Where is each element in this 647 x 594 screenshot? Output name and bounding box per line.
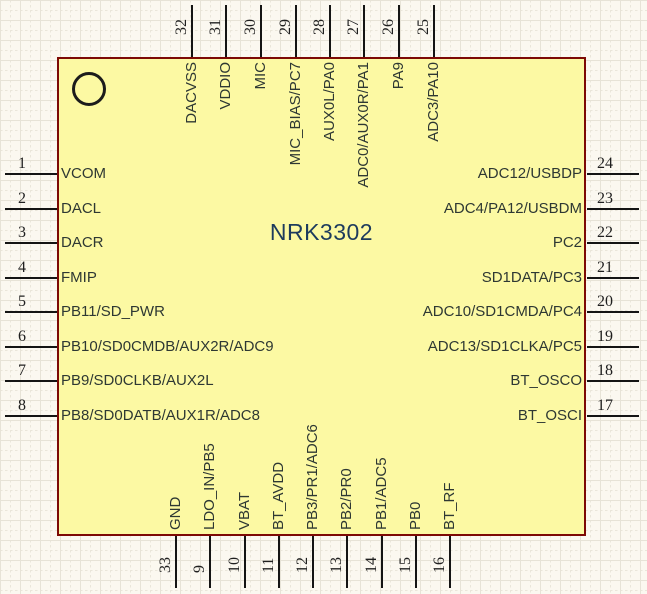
pin-line: [5, 208, 57, 210]
pin-name: MIC: [253, 62, 269, 90]
pin-line: [433, 5, 435, 57]
pin-number: 15: [397, 557, 414, 573]
pin-number: 29: [277, 19, 294, 35]
pin-line: [449, 536, 451, 588]
pin-number: 27: [345, 19, 362, 35]
pin-line: [587, 380, 639, 382]
pin-line: [587, 277, 639, 279]
pin-number: 6: [0, 328, 44, 345]
pin-name: VCOM: [61, 166, 106, 182]
pin-number: 25: [415, 19, 432, 35]
pin-number: 14: [363, 557, 380, 573]
pin-number: 1: [0, 155, 44, 172]
pin-name: BT_OSCO: [510, 373, 582, 389]
pin-name: ADC4/PA12/USBDM: [444, 201, 582, 217]
pin-line: [295, 5, 297, 57]
pin-name: VBAT: [237, 492, 253, 530]
pin-line: [244, 536, 246, 588]
pin-name: PB0: [408, 502, 424, 530]
pin-line: [5, 380, 57, 382]
pin-name: GND: [168, 497, 184, 530]
pin-line: [175, 536, 177, 588]
pin-number: 31: [207, 19, 224, 35]
pin-line: [587, 346, 639, 348]
pin-number: 33: [157, 557, 174, 573]
pin-number: 26: [380, 19, 397, 35]
pin-name: SD1DATA/PC3: [482, 270, 582, 286]
pin-number: 12: [294, 557, 311, 573]
pin-line: [5, 173, 57, 175]
pin-line: [329, 5, 331, 57]
pin-name: PC2: [553, 235, 582, 251]
pin-line: [587, 311, 639, 313]
pin-number: 17: [583, 397, 627, 414]
pin-line: [191, 5, 193, 57]
pin-line: [415, 536, 417, 588]
pin-number: 5: [0, 293, 44, 310]
pin-number: 11: [260, 558, 277, 573]
pin-line: [5, 311, 57, 313]
pin-number: 13: [328, 557, 345, 573]
pin-number: 18: [583, 362, 627, 379]
pin-number: 9: [191, 565, 208, 573]
pin-name: DACL: [61, 201, 101, 217]
pin-name: PB3/PR1/ADC6: [305, 424, 321, 530]
pin-name: BT_OSCI: [518, 408, 582, 424]
component-title: NRK3302: [57, 219, 586, 246]
pin-name: PB2/PR0: [339, 468, 355, 530]
pin-line: [587, 242, 639, 244]
pin-number: 32: [173, 19, 190, 35]
pin-name: AUX0L/PA0: [322, 62, 338, 141]
pin-name: PB11/SD_PWR: [61, 304, 165, 320]
pin-line: [312, 536, 314, 588]
pin-number: 7: [0, 362, 44, 379]
pin-line: [587, 173, 639, 175]
pin-name: PB8/SD0DATB/AUX1R/ADC8: [61, 408, 260, 424]
pin-name: PB10/SD0CMDB/AUX2R/ADC9: [61, 339, 274, 355]
pin-name: ADC3/PA10: [426, 62, 442, 142]
pin-line: [5, 415, 57, 417]
pin-name: DACVSS: [184, 62, 200, 124]
schematic-canvas[interactable]: NRK3302 1VCOM2DACL3DACR4FMIP5PB11/SD_PWR…: [0, 0, 647, 594]
circle-marker-icon: [72, 72, 106, 106]
pin-number: 2: [0, 190, 44, 207]
pin-number: 21: [583, 259, 627, 276]
pin-number: 24: [583, 155, 627, 172]
pin-number: 30: [242, 19, 259, 35]
pin-line: [5, 346, 57, 348]
pin-line: [381, 536, 383, 588]
pin-line: [5, 277, 57, 279]
pin-name: ADC12/USBDP: [478, 166, 582, 182]
pin-number: 4: [0, 259, 44, 276]
pin-name: PB9/SD0CLKB/AUX2L: [61, 373, 214, 389]
pin-name: ADC0/AUX0R/PA1: [356, 62, 372, 188]
pin-number: 20: [583, 293, 627, 310]
pin-line: [587, 208, 639, 210]
pin-name: LDO_IN/PB5: [202, 443, 218, 530]
pin-number: 8: [0, 397, 44, 414]
pin-line: [398, 5, 400, 57]
pin-number: 10: [226, 557, 243, 573]
pin-line: [5, 242, 57, 244]
pin-name: ADC13/SD1CLKA/PC5: [428, 339, 582, 355]
pin-number: 3: [0, 224, 44, 241]
pin-name: PB1/ADC5: [374, 457, 390, 530]
pin-name: MIC_BIAS/PC7: [288, 62, 304, 165]
pin-number: 23: [583, 190, 627, 207]
pin-name: PA9: [391, 62, 407, 89]
pin-number: 22: [583, 224, 627, 241]
pin-line: [346, 536, 348, 588]
pin-line: [209, 536, 211, 588]
pin-line: [260, 5, 262, 57]
pin-number: 28: [311, 19, 328, 35]
pin-name: BT_AVDD: [271, 462, 287, 530]
pin-name: ADC10/SD1CMDA/PC4: [423, 304, 582, 320]
pin-name: DACR: [61, 235, 104, 251]
pin-line: [225, 5, 227, 57]
pin-line: [587, 415, 639, 417]
pin-number: 16: [431, 557, 448, 573]
pin-name: VDDIO: [218, 62, 234, 110]
pin-name: FMIP: [61, 270, 97, 286]
pin-line: [278, 536, 280, 588]
pin-number: 19: [583, 328, 627, 345]
pin-name: BT_RF: [442, 482, 458, 530]
pin-line: [363, 5, 365, 57]
